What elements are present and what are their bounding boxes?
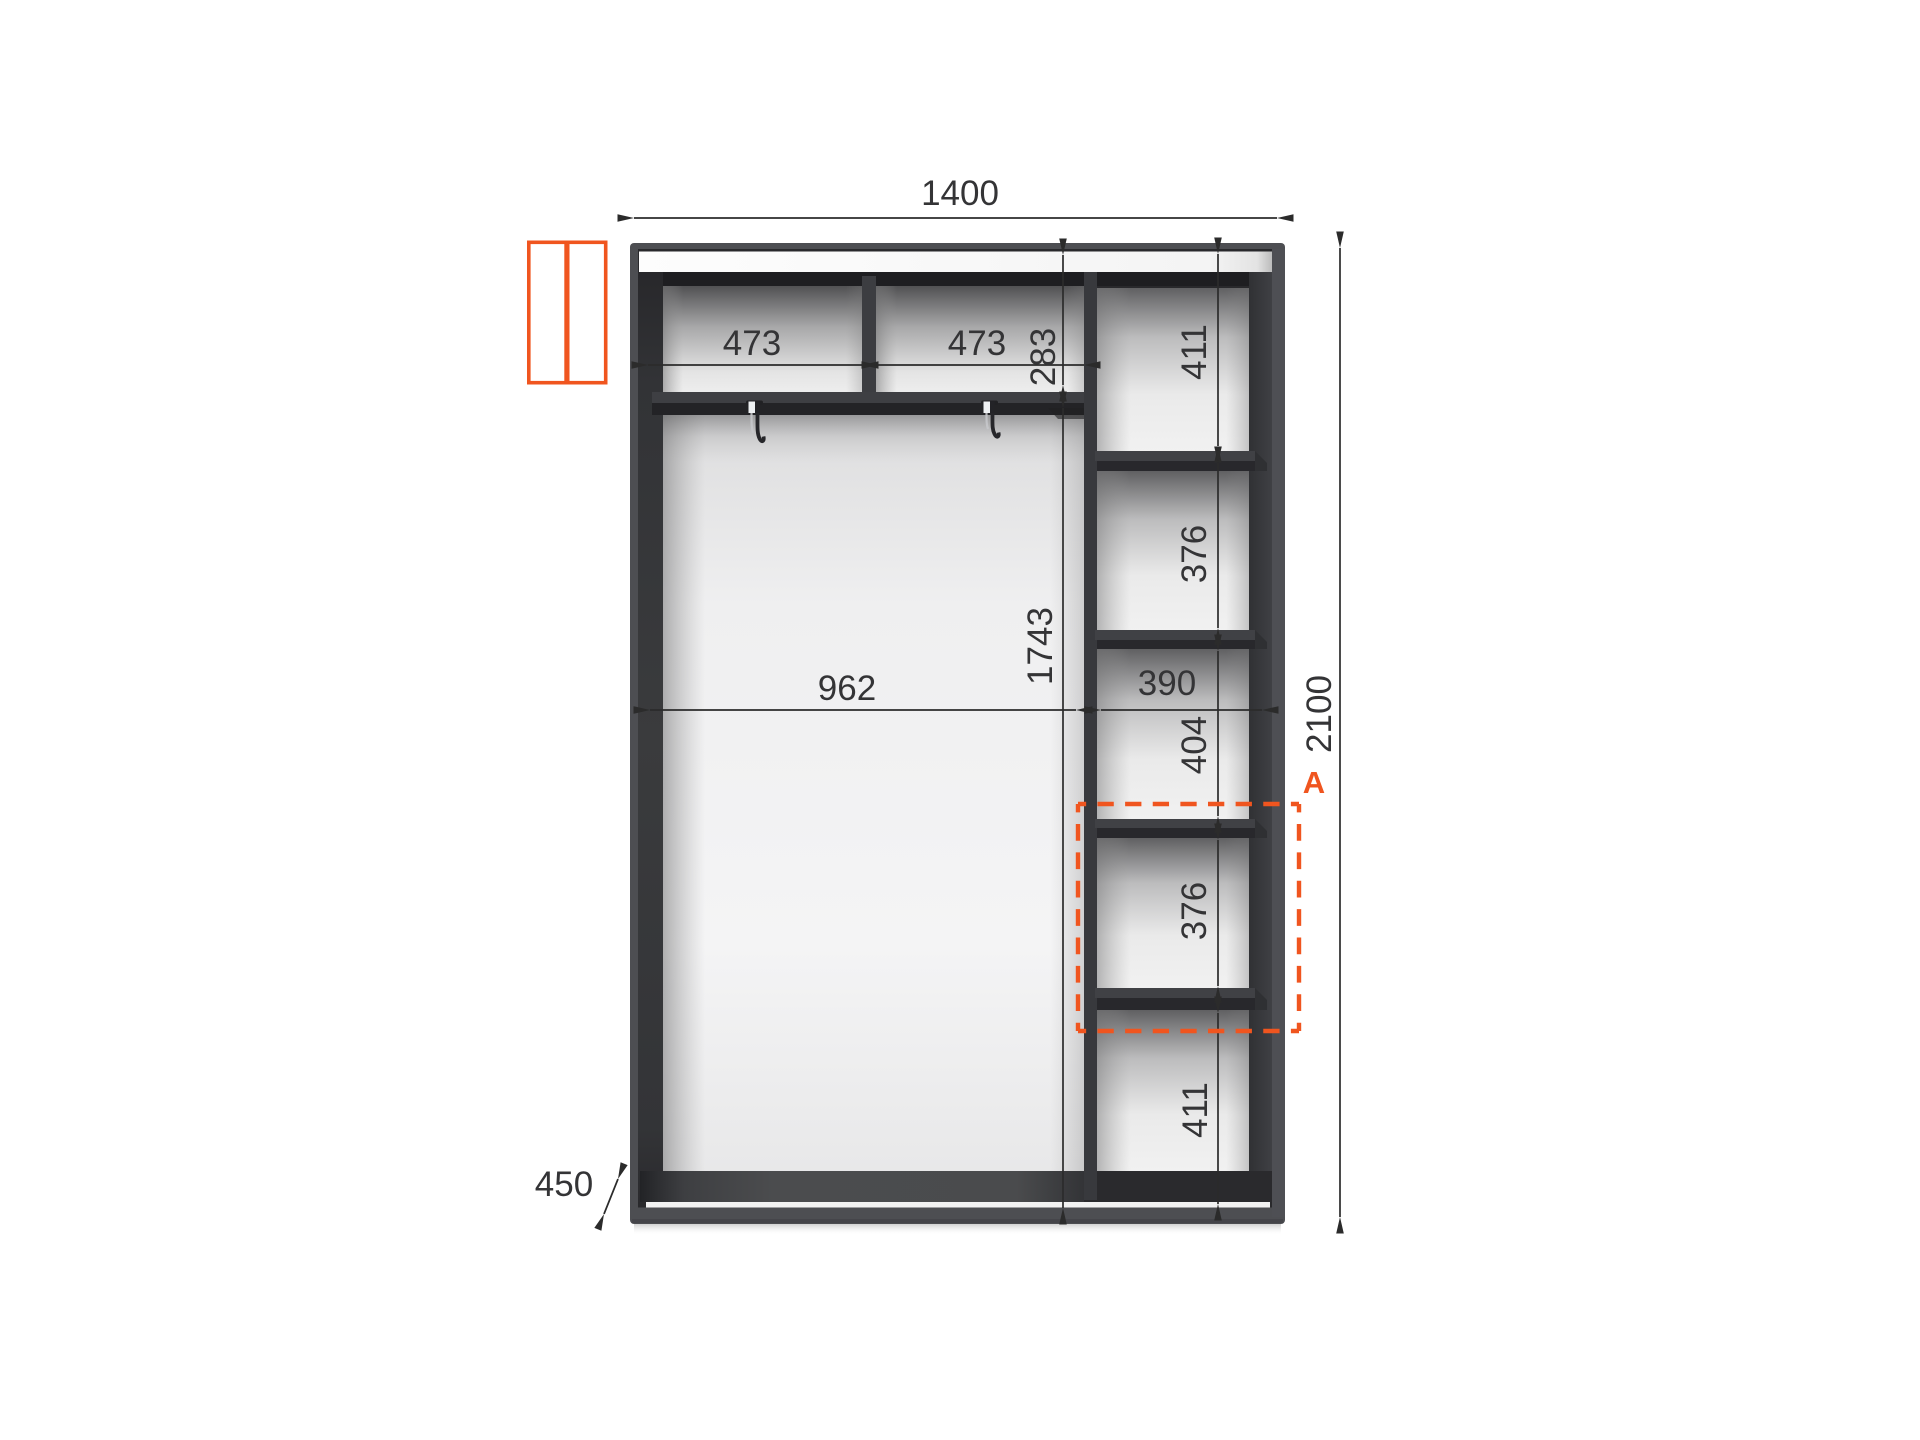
svg-text:283: 283 (1024, 328, 1063, 386)
svg-text:2100: 2100 (1300, 675, 1339, 753)
svg-text:376: 376 (1175, 882, 1214, 940)
svg-text:450: 450 (535, 1165, 593, 1204)
svg-text:473: 473 (948, 324, 1006, 363)
svg-text:411: 411 (1175, 324, 1214, 380)
svg-text:962: 962 (818, 669, 876, 708)
svg-text:1400: 1400 (921, 174, 999, 213)
svg-text:404: 404 (1175, 716, 1214, 774)
svg-text:473: 473 (723, 324, 781, 363)
svg-text:411: 411 (1176, 1082, 1215, 1138)
svg-text:376: 376 (1175, 525, 1214, 583)
svg-text:A: A (1303, 765, 1325, 800)
svg-text:390: 390 (1138, 664, 1196, 703)
svg-text:1743: 1743 (1021, 607, 1060, 685)
